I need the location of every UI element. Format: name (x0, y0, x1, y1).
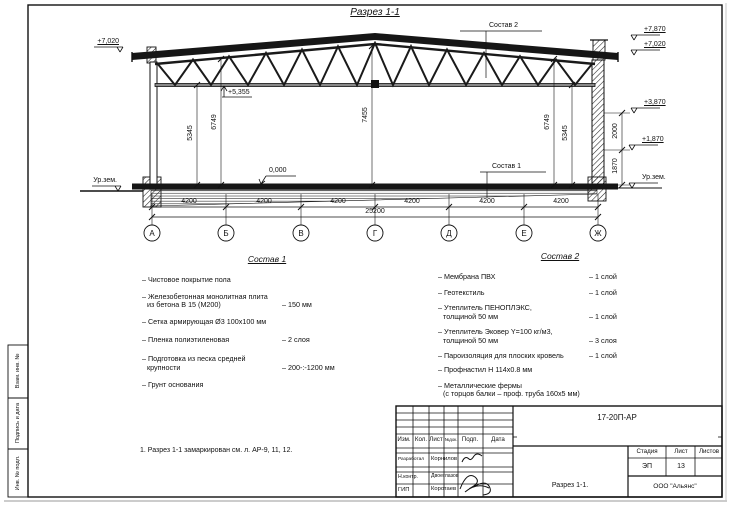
item-text2: (с торцов балки – проф. труба 160х5 мм) (438, 390, 731, 399)
dim-total: 25200 (365, 208, 384, 216)
wall-left (150, 62, 157, 184)
titleblock-drawing-name: Разрез 1-1. (552, 482, 588, 490)
list-item: – Утеплитель Эковер Y=100 кг/м3, толщино… (438, 328, 731, 345)
axis-bubbles: А Б В Г Д Е Ж (144, 225, 606, 241)
item-value: – 200-:-1200 мм (282, 364, 335, 373)
dim-left-inner: 5345 (187, 125, 195, 141)
item-text: – Профнастил Н 114х0.8 мм (438, 365, 532, 374)
elevation-right-ground: Ур.зем. (642, 174, 666, 182)
list-item: – Мембрана ПВХ – 1 слой (438, 273, 731, 282)
elevation-right-low: +1,870 (642, 136, 664, 144)
item-value: – 1 слой (589, 289, 617, 298)
margin-label-inv: Инв. № подл. (15, 456, 21, 491)
axis-label-b: Б (223, 229, 228, 238)
signature-icon (460, 454, 490, 495)
axis-label-zh: Ж (594, 229, 602, 238)
item-text: – Пароизоляция для плоских кровель (438, 351, 564, 360)
elevation-left-roof: +7,020 (97, 38, 119, 46)
list-item: – Грунт основания (142, 381, 442, 390)
list-item: – Железобетонная монолитная плита из бет… (142, 293, 442, 310)
titleblock-sheets-label: Листов (699, 449, 719, 456)
list-item: – Металлические фермы (с торцов балки – … (438, 382, 731, 399)
wall-right (592, 60, 604, 184)
titleblock-stage-value: ЭП (642, 463, 652, 471)
item-text: – Утеплитель ПЕНОПЛЭКС, (438, 303, 532, 312)
titleblock-col-data: Дата (491, 437, 505, 444)
elevation-right-eaves: +7,020 (644, 41, 666, 49)
dim-span-1: 4200 (181, 198, 197, 206)
margin-label-vzam: Взам. инв. № (15, 354, 21, 389)
item-text: – Мембрана ПВХ (438, 272, 495, 281)
list-item: – Пароизоляция для плоских кровель – 1 с… (438, 352, 731, 361)
dim-left-outer: 6749 (211, 114, 219, 130)
titleblock-name-dvoeglazov: Двоеглазов (431, 474, 459, 480)
axis-label-d: Д (446, 229, 452, 238)
titleblock-company: ООО "Альянс" (653, 483, 696, 490)
item-text: – Геотекстиль (438, 288, 485, 297)
titleblock-role-nkontr: Н.контр. (398, 475, 418, 481)
floor-sand-layer (151, 190, 597, 206)
item-value: – 1 слой (589, 313, 617, 322)
item-text2: толщиной 50 мм (438, 337, 731, 346)
item-text: – Чистовое покрытие пола (142, 275, 231, 284)
item-text: – Подготовка из песка средней (142, 354, 246, 363)
sheet-edge (4, 3, 727, 501)
titleblock-sheet-label: Лист (674, 449, 687, 456)
axis-label-e: Е (521, 229, 526, 238)
item-text: – Сетка армирующая Ø3 100х100 мм (142, 317, 266, 326)
titleblock-role-razrabotal: Разработал (398, 457, 424, 462)
dim-span-4: 4200 (404, 198, 420, 206)
list-item: – Геотекстиль – 1 слой (438, 289, 731, 298)
drawing-frame (8, 5, 722, 497)
elevation-right-mid: +3,870 (644, 99, 666, 107)
item-text2: толщиной 50 мм (438, 313, 731, 322)
titleblock-col-list: Лист (429, 437, 442, 444)
callout-sostav2: Состав 2 (489, 22, 518, 30)
roof-layer (132, 33, 618, 60)
axis-label-v: В (298, 229, 303, 238)
margin-label-podpis: Подпись и дата (15, 403, 21, 443)
list-item: – Профнастил Н 114х0.8 мм (438, 366, 731, 375)
item-text: – Пленка полиэтиленовая (142, 335, 229, 344)
composition2-title: Состав 2 (541, 252, 579, 261)
item-value: – 2 слоя (282, 336, 310, 345)
axis-label-a: А (149, 229, 155, 238)
item-value: – 3 слоя (589, 337, 617, 346)
note-text: 1. Разрез 1-1 замаркирован см. л. АР-9, … (140, 447, 292, 455)
elevation-floor-zero: 0,000 (269, 167, 287, 175)
list-item: – Подготовка из песка средней крупности … (142, 355, 442, 372)
titleblock-name-korotaev: Коротаев (431, 486, 456, 492)
composition1-title: Состав 1 (248, 255, 286, 264)
titleblock-col-podp: Подп. (462, 437, 478, 444)
titleblock-name-kornilov: Корнилов (431, 456, 457, 462)
elevation-flags (92, 35, 660, 191)
callout-sostav1: Состав 1 (492, 163, 521, 171)
dim-span-3: 4200 (330, 198, 346, 206)
section-drawing: А Б В Г Д Е Ж (0, 0, 731, 507)
titleblock-doc-code: 17-20П-АР (597, 414, 637, 423)
titleblock-stage-label: Стадия (636, 449, 657, 456)
dim-span-5: 4200 (479, 198, 495, 206)
titleblock-col-kol: Кол. (415, 437, 427, 444)
titleblock-role-gip: ГИП (398, 487, 409, 493)
titleblock-sheet-value: 13 (677, 463, 685, 471)
list-item: – Утеплитель ПЕНОПЛЭКС, толщиной 50 мм –… (438, 304, 731, 321)
dim-right-upper: 2000 (612, 123, 620, 139)
dim-right-inner: 5345 (562, 125, 570, 141)
elevation-right-ridge: +7,870 (644, 26, 666, 34)
elevation-left-ground: Ур.зем. (93, 177, 117, 185)
list-item: – Пленка полиэтиленовая – 2 слоя (142, 336, 442, 345)
list-item: – Сетка армирующая Ø3 100х100 мм (142, 318, 442, 327)
list-item: – Чистовое покрытие пола (142, 276, 442, 285)
dim-right-lower: 1870 (612, 158, 620, 174)
item-value: – 1 слой (589, 273, 617, 282)
item-value: – 1 слой (589, 352, 617, 361)
dim-right-outer: 6749 (544, 114, 552, 130)
page-title: Разрез 1-1 (350, 7, 400, 18)
titleblock-col-ndok: №док. (445, 438, 458, 443)
dim-span-2: 4200 (256, 198, 272, 206)
item-text: – Грунт основания (142, 380, 203, 389)
drawing-sheet: А Б В Г Д Е Ж (0, 0, 731, 507)
item-value: – 150 мм (282, 301, 312, 310)
titleblock-col-izm: Изм. (397, 437, 410, 444)
axis-label-g: Г (373, 229, 378, 238)
dim-span-6: 4200 (553, 198, 569, 206)
floor-slab (132, 184, 618, 190)
dim-center: 7455 (362, 107, 370, 123)
elevation-truss-bottom: +5,355 (228, 89, 250, 97)
building-section (80, 33, 662, 207)
